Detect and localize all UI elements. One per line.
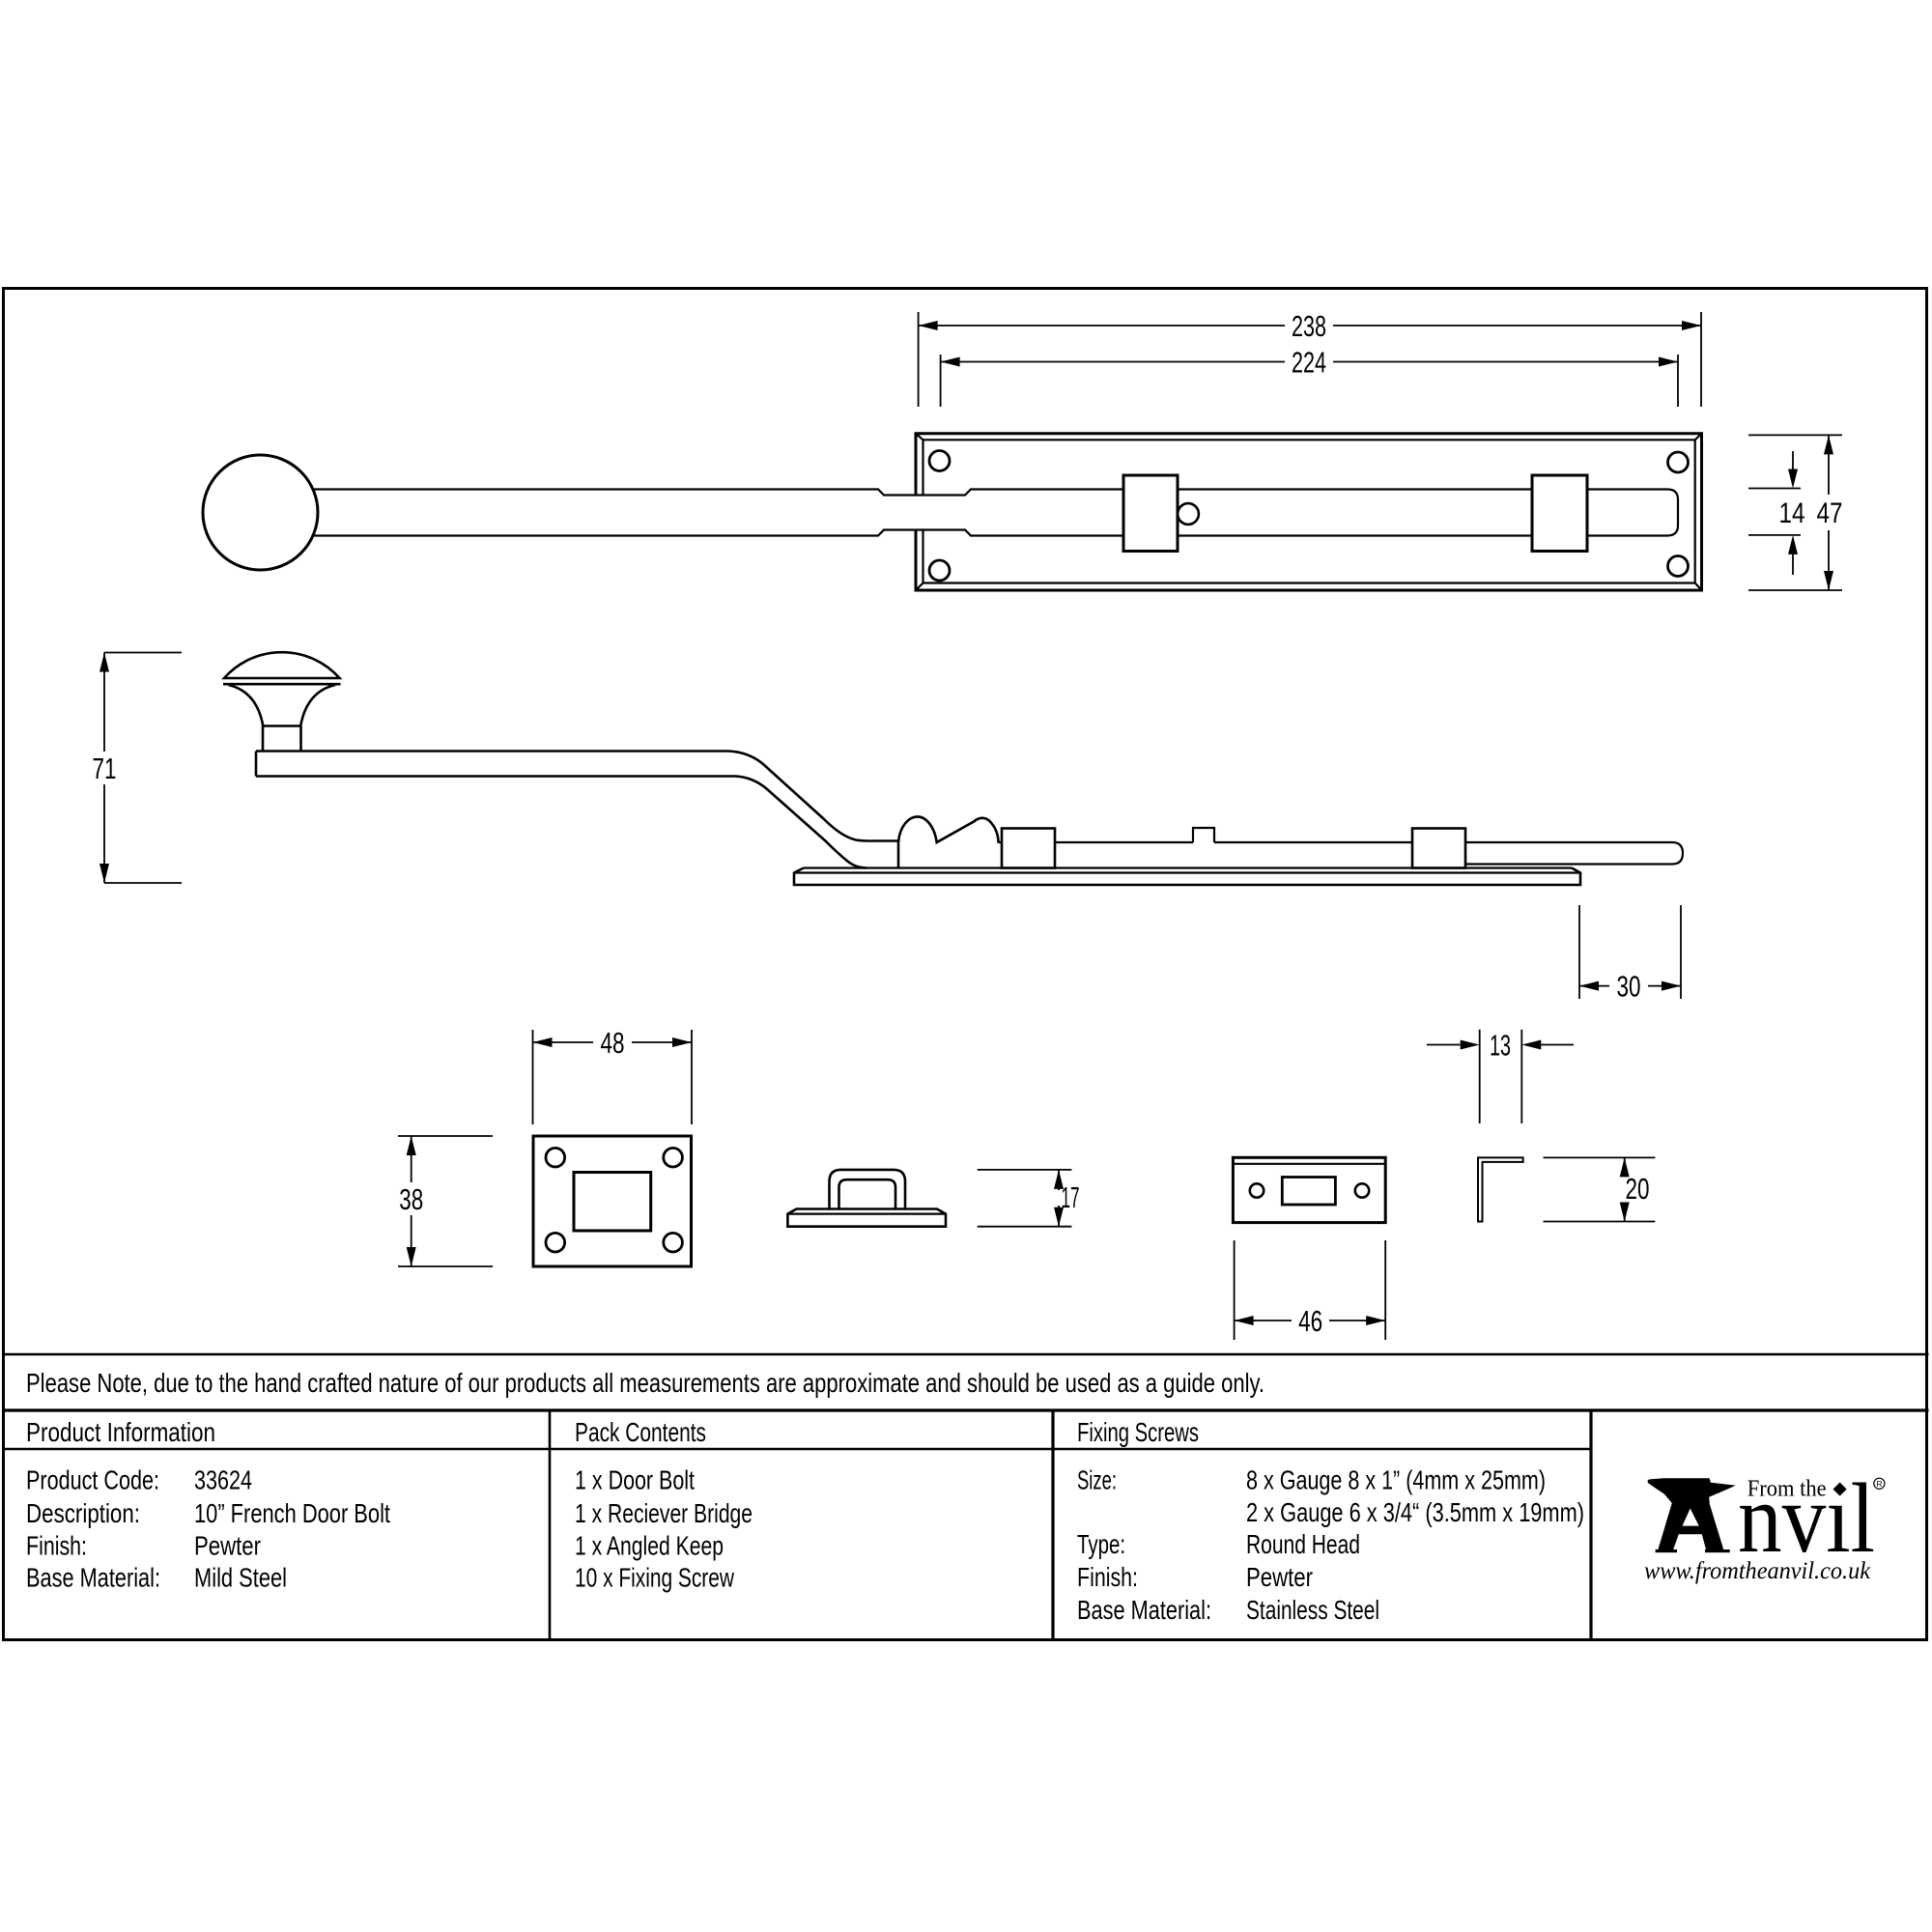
svg-text:Please Note, due to the hand c: Please Note, due to the hand crafted nat…	[26, 1368, 1264, 1398]
svg-text:Stainless Steel: Stainless Steel	[1246, 1595, 1379, 1625]
svg-text:Finish:: Finish:	[26, 1531, 87, 1561]
svg-text:Pewter: Pewter	[1246, 1562, 1313, 1592]
svg-text:Product Information: Product Information	[26, 1417, 215, 1447]
svg-text:10” French Door Bolt: 10” French Door Bolt	[194, 1498, 390, 1528]
svg-text:1 x Reciever Bridge: 1 x Reciever Bridge	[575, 1498, 753, 1528]
svg-text:www.fromtheanvil.co.uk: www.fromtheanvil.co.uk	[1644, 1558, 1871, 1584]
svg-text:17: 17	[1062, 1180, 1080, 1214]
svg-text:1 x Door Bolt: 1 x Door Bolt	[575, 1465, 695, 1495]
svg-text:224: 224	[1292, 346, 1326, 380]
svg-text:13: 13	[1490, 1029, 1511, 1063]
svg-text:38: 38	[399, 1182, 423, 1216]
svg-text:Description:: Description:	[26, 1498, 140, 1528]
svg-text:30: 30	[1617, 970, 1641, 1004]
svg-text:Finish:: Finish:	[1077, 1562, 1138, 1592]
svg-text:R: R	[1876, 1479, 1882, 1489]
svg-text:10 x Fixing Screw: 10 x Fixing Screw	[575, 1563, 734, 1593]
svg-text:48: 48	[601, 1026, 625, 1060]
svg-text:1 x Angled Keep: 1 x Angled Keep	[575, 1531, 724, 1561]
svg-text:20: 20	[1626, 1172, 1650, 1206]
svg-text:nvıl: nvıl	[1738, 1463, 1875, 1574]
svg-text:14: 14	[1779, 497, 1805, 529]
svg-text:Pewter: Pewter	[194, 1531, 261, 1561]
svg-text:71: 71	[93, 752, 117, 785]
svg-text:Product Code:: Product Code:	[26, 1465, 159, 1495]
svg-text:Size:: Size:	[1077, 1465, 1117, 1495]
svg-text:Base Material:: Base Material:	[26, 1563, 160, 1593]
svg-text:2 x Gauge 6 x 3/4“ (3.5mm x 19: 2 x Gauge 6 x 3/4“ (3.5mm x 19mm)	[1246, 1497, 1584, 1527]
svg-text:Fixing Screws: Fixing Screws	[1077, 1417, 1199, 1447]
svg-text:Mild Steel: Mild Steel	[194, 1563, 287, 1593]
svg-text:Round Head: Round Head	[1246, 1529, 1360, 1559]
svg-text:33624: 33624	[194, 1465, 252, 1495]
svg-text:238: 238	[1292, 309, 1326, 343]
svg-text:Type:: Type:	[1077, 1529, 1125, 1559]
svg-text:47: 47	[1817, 497, 1843, 529]
svg-text:8 x Gauge 8 x 1” (4mm x 25mm): 8 x Gauge 8 x 1” (4mm x 25mm)	[1246, 1465, 1546, 1495]
svg-text:Pack Contents: Pack Contents	[575, 1417, 706, 1447]
svg-text:Base Material:: Base Material:	[1077, 1595, 1211, 1625]
svg-text:46: 46	[1298, 1304, 1322, 1338]
